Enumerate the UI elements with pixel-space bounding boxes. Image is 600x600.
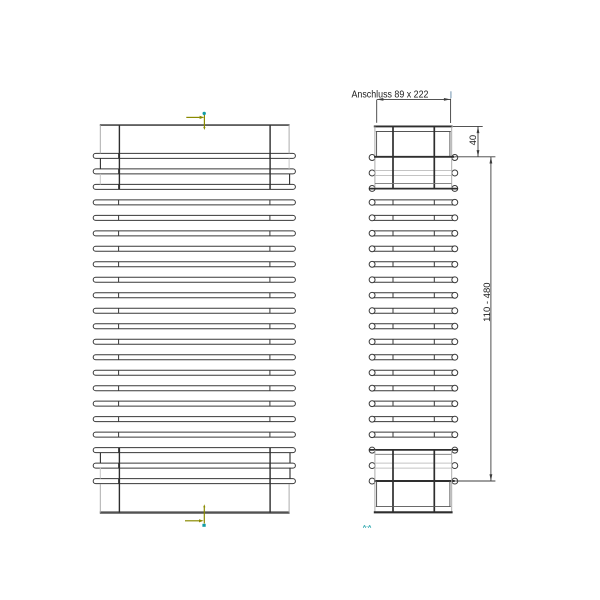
svg-text:40: 40 bbox=[468, 135, 479, 146]
svg-text:110 - 480: 110 - 480 bbox=[482, 282, 493, 321]
svg-text:Anschluss 89 x 222: Anschluss 89 x 222 bbox=[352, 89, 429, 100]
svg-text:A-A: A-A bbox=[363, 524, 372, 530]
